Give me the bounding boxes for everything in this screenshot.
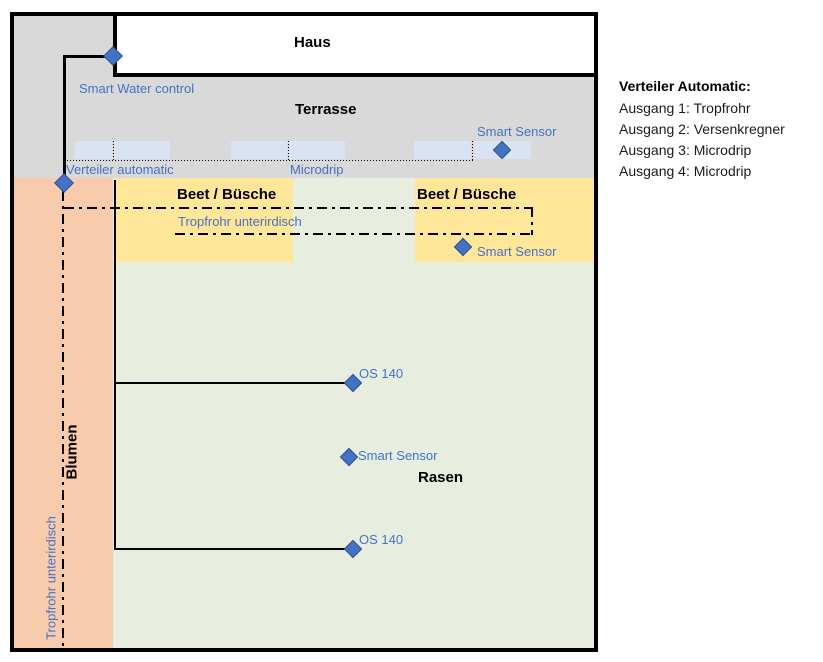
legend-item-ausgang-3: Ausgang 3: Microdrip <box>619 143 819 157</box>
legend: Verteiler Automatic: Ausgang 1: Tropfroh… <box>619 78 819 185</box>
legend-item-ausgang-2: Ausgang 2: Versenkregner <box>619 122 819 136</box>
legend-item-ausgang-4: Ausgang 4: Microdrip <box>619 164 819 178</box>
legend-title: Verteiler Automatic: <box>619 78 819 94</box>
legend-item-ausgang-1: Ausgang 1: Tropfrohr <box>619 101 819 115</box>
plan-outer-border <box>10 12 598 652</box>
garden-irrigation-plan: Haus Smart Water control Verteiler autom… <box>0 0 823 662</box>
